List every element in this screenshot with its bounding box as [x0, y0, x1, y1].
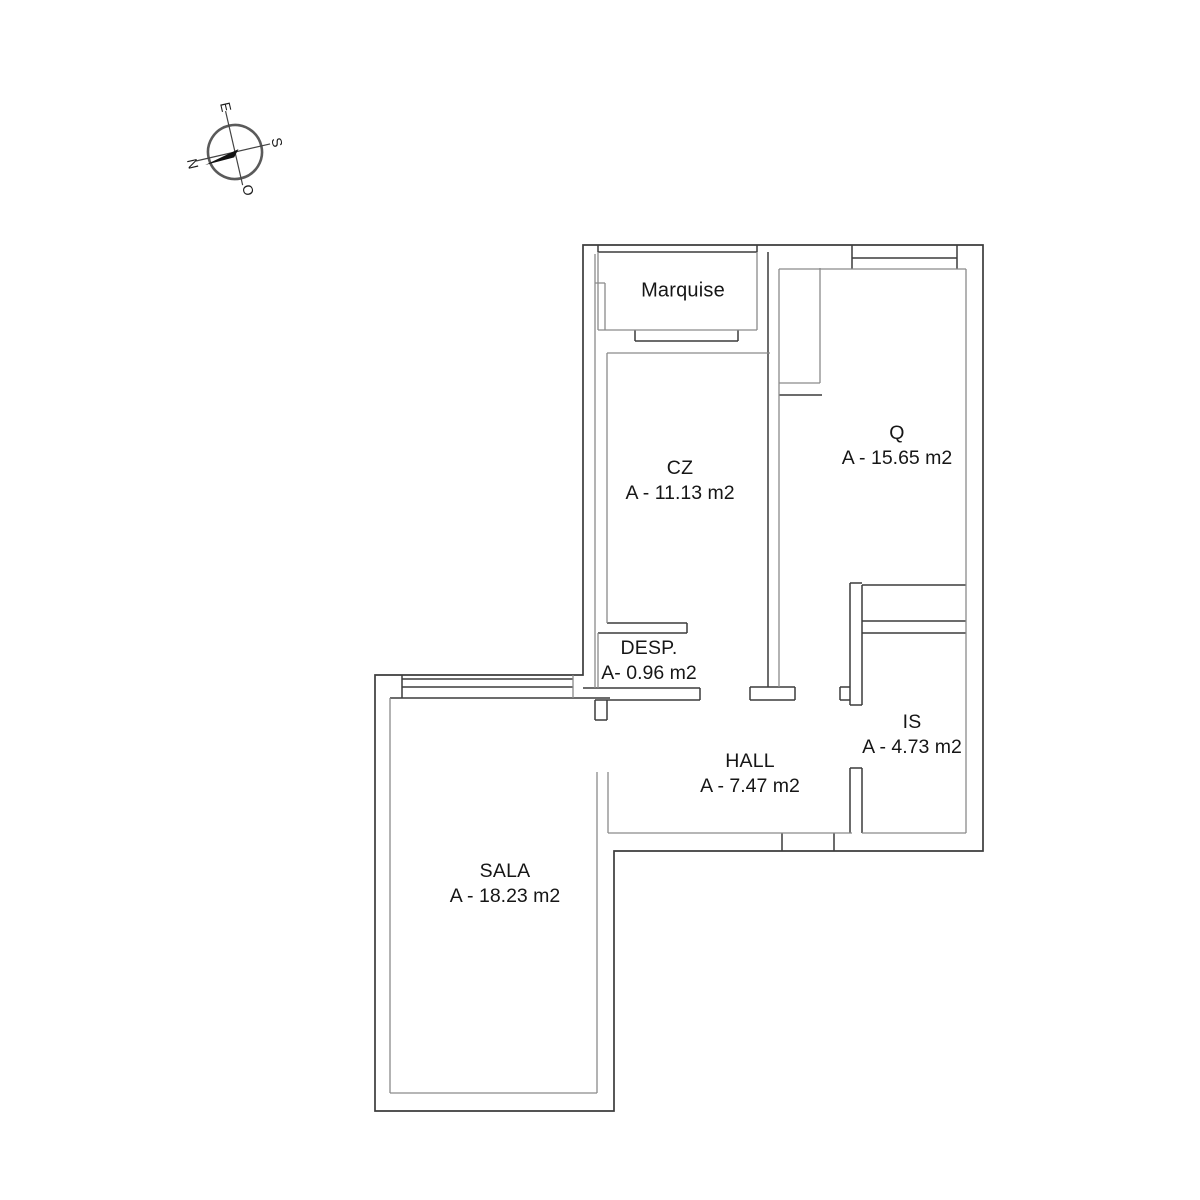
room-area-hall: A - 7.47 m2 — [700, 774, 800, 799]
room-area-is: A - 4.73 m2 — [862, 735, 962, 760]
compass-rose: N E S O — [173, 91, 295, 208]
room-name-sala: SALA — [450, 859, 561, 884]
room-label-marquise: Marquise — [641, 279, 725, 304]
room-name-desp: DESP. — [601, 636, 696, 661]
interior-walls-dark — [390, 245, 966, 851]
room-label-desp: DESP. A- 0.96 m2 — [601, 636, 696, 686]
room-name-cz: CZ — [625, 456, 734, 481]
room-name-marquise: Marquise — [641, 279, 725, 304]
room-name-q: Q — [842, 421, 953, 446]
compass-label-o: O — [239, 183, 257, 197]
compass-label-e: E — [217, 101, 235, 114]
room-label-hall: HALL A - 7.47 m2 — [700, 749, 800, 799]
room-name-is: IS — [862, 710, 962, 735]
room-name-hall: HALL — [700, 749, 800, 774]
floor-plan-drawing: N E S O — [0, 0, 1200, 1200]
room-label-sala: SALA A - 18.23 m2 — [450, 859, 561, 909]
room-label-cz: CZ A - 11.13 m2 — [625, 456, 734, 506]
room-area-sala: A - 18.23 m2 — [450, 884, 561, 909]
floor-plan-canvas: N E S O Marquise CZ A - 11.13 m2 Q A - 1… — [0, 0, 1200, 1200]
compass-axes — [187, 103, 278, 194]
room-area-desp: A- 0.96 m2 — [601, 661, 696, 686]
room-area-cz: A - 11.13 m2 — [625, 481, 734, 506]
room-label-is: IS A - 4.73 m2 — [862, 710, 962, 760]
room-area-q: A - 15.65 m2 — [842, 446, 953, 471]
room-label-q: Q A - 15.65 m2 — [842, 421, 953, 471]
compass-label-s: S — [268, 136, 286, 149]
compass-label-n: N — [184, 157, 202, 170]
